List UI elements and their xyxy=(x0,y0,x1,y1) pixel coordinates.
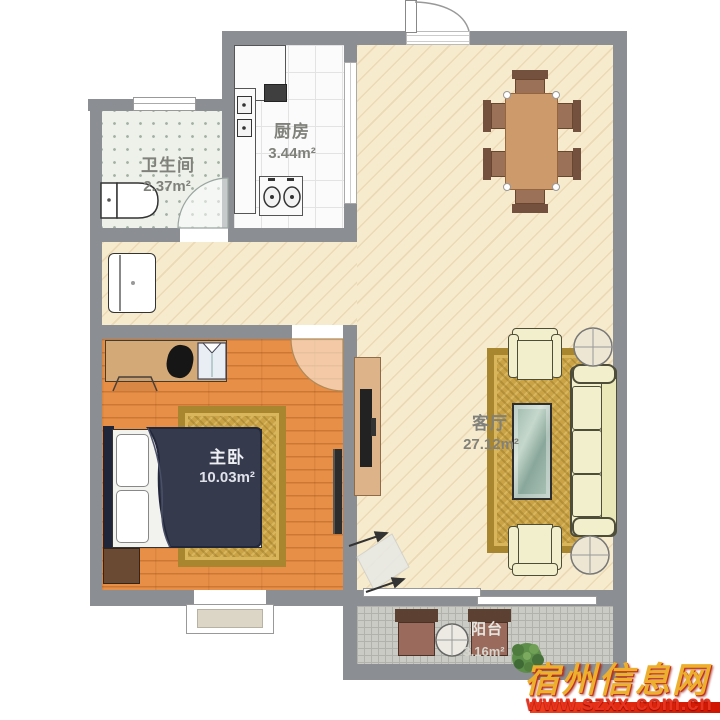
room-area-balcony: 3.16m² xyxy=(463,645,504,658)
wall-left xyxy=(90,99,102,606)
room-label-kitchen: 厨房 xyxy=(274,123,310,140)
sofa-armrest-bottom xyxy=(572,517,616,537)
bed-pillow-1 xyxy=(116,434,149,487)
sofa-cushion-2 xyxy=(572,430,602,474)
balcony-slider-panel-1 xyxy=(363,588,481,597)
living-room-tv-stand xyxy=(371,418,376,436)
room-label-living-room: 客厅 xyxy=(472,415,508,432)
wall-right xyxy=(613,31,627,680)
balcony-slider-panel-2 xyxy=(477,596,597,605)
dining-chair-bottom-back xyxy=(512,204,548,213)
bay-window-sill xyxy=(197,609,263,628)
bedroom-door-opening xyxy=(292,325,343,339)
entry-door-swing-arc xyxy=(415,2,469,31)
room-label-bathroom: 卫生间 xyxy=(141,157,195,174)
kitchen-sliding-door xyxy=(344,62,357,204)
room-area-living-room: 27.12m² xyxy=(463,437,519,452)
armchair-top-seat xyxy=(517,340,553,380)
room-label-bedroom: 主卧 xyxy=(209,449,245,466)
dining-chair-right1-back xyxy=(573,100,581,132)
dining-chair-left2-back xyxy=(483,148,491,180)
floor-plan: 卫生间 2.37m² 厨房 3.44m² 主卧 10.03m² 客厅 27.12… xyxy=(0,0,720,720)
kitchen-counter-corner xyxy=(264,84,287,102)
sofa-armrest-top xyxy=(572,364,616,384)
room-area-bedroom: 10.03m² xyxy=(199,470,255,485)
dining-chair-bottom-seat xyxy=(515,188,545,204)
bed-pillow-2 xyxy=(116,490,149,543)
dining-chair-top-back xyxy=(512,70,548,79)
nightstand xyxy=(103,548,140,584)
room-area-bathroom: 2.37m² xyxy=(143,179,191,194)
kitchen-sink-basin-2 xyxy=(237,119,252,137)
dining-table xyxy=(505,93,558,190)
watermark-site-url: www.szxx.com.cn xyxy=(526,692,720,716)
sofa-cushion-1 xyxy=(572,386,602,430)
dining-chair-left1-back xyxy=(483,100,491,132)
entry-door-threshold xyxy=(406,31,470,45)
room-area-kitchen: 3.44m² xyxy=(268,146,316,161)
dining-chair-right1-seat xyxy=(557,103,573,129)
kitchen-stove xyxy=(259,176,303,216)
armchair-bottom-seat xyxy=(517,524,553,564)
bathroom-window xyxy=(133,97,196,111)
sofa-cushion-3 xyxy=(572,474,602,517)
kitchen-sink-basin-1 xyxy=(237,96,252,114)
bedroom-tv xyxy=(333,449,342,534)
balcony-chair-left-seat xyxy=(398,622,435,656)
armchair-bottom-back xyxy=(512,563,558,576)
bathroom-door-opening xyxy=(180,228,228,242)
dining-chair-right2-back xyxy=(573,148,581,180)
sofa-backrest xyxy=(601,378,617,525)
entry-door-leaf xyxy=(405,0,417,33)
dining-chair-right2-seat xyxy=(557,151,573,177)
refrigerator-handle xyxy=(131,281,135,285)
refrigerator-door-line xyxy=(119,255,121,311)
wall-bath-kitchen xyxy=(222,31,234,242)
balcony-chair-left-back xyxy=(395,609,438,622)
room-label-balcony: 阳台 xyxy=(471,622,503,637)
